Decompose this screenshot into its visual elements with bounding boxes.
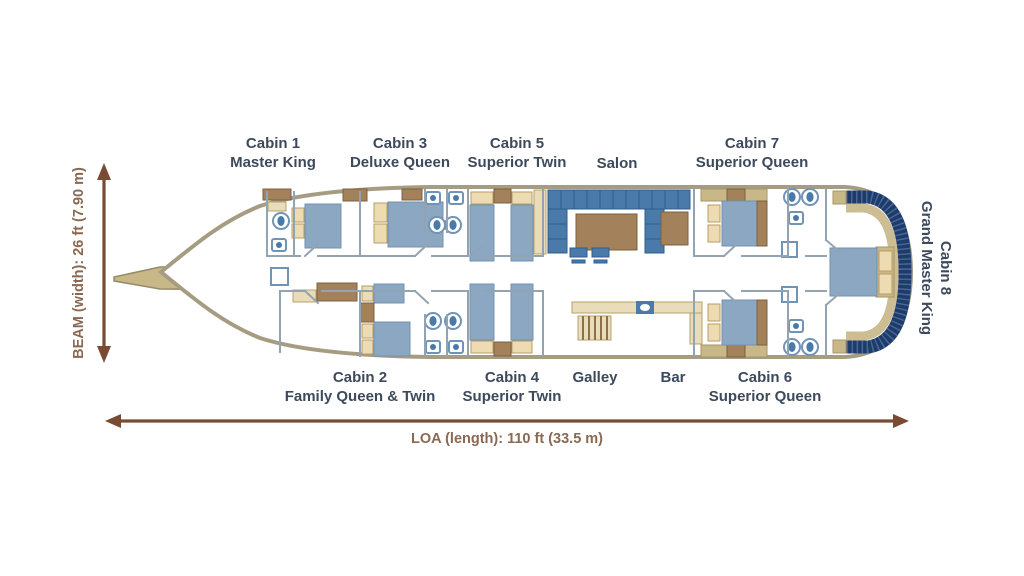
loa-dimension-label: LOA (length): 110 ft (33.5 m): [411, 431, 603, 447]
shower-icon: [782, 242, 797, 257]
shower-icon: [271, 268, 288, 285]
label-line: Superior Queen: [696, 153, 809, 172]
label-cabin-8: Cabin 8 Grand Master King: [917, 201, 955, 335]
label-cabin-6: Cabin 6 Superior Queen: [709, 368, 822, 406]
label-line: Grand Master King: [917, 201, 936, 335]
toilet-icon: [429, 217, 445, 233]
sink-icon: [789, 212, 803, 224]
label-line: Cabin 6: [709, 368, 822, 387]
label-line: Galley: [572, 368, 617, 387]
label-line: Cabin 8: [936, 201, 955, 335]
label-line: Cabin 2: [285, 368, 436, 387]
toilet-icon: [784, 339, 800, 355]
toilet-icon: [784, 189, 800, 205]
label-line: Cabin 4: [463, 368, 562, 387]
label-line: Deluxe Queen: [350, 153, 450, 172]
label-salon: Salon: [597, 154, 638, 173]
label-cabin-7: Cabin 7 Superior Queen: [696, 134, 809, 172]
salon-side-table: [661, 212, 688, 245]
label-bar: Bar: [660, 368, 685, 387]
label-line: Superior Queen: [709, 387, 822, 406]
label-line: Cabin 3: [350, 134, 450, 153]
label-cabin-5: Cabin 5 Superior Twin: [468, 134, 567, 172]
sink-icon: [789, 320, 803, 332]
label-line: Family Queen & Twin: [285, 387, 436, 406]
sink-icon: [426, 341, 440, 353]
label-line: Cabin 7: [696, 134, 809, 153]
cabin-6-furniture: [701, 300, 767, 357]
label-line: Salon: [597, 154, 638, 173]
toilet-icon: [425, 313, 441, 329]
label-cabin-2: Cabin 2 Family Queen & Twin: [285, 368, 436, 406]
toilet-icon: [802, 189, 818, 205]
beam-dimension-label: BEAM (width): 26 ft (7.90 m): [71, 167, 87, 359]
beam-arrow: [97, 163, 111, 363]
toilet-icon: [802, 339, 818, 355]
sink-icon: [449, 341, 463, 353]
label-cabin-3: Cabin 3 Deluxe Queen: [350, 134, 450, 172]
label-line: Superior Twin: [468, 153, 567, 172]
label-line: Bar: [660, 368, 685, 387]
label-cabin-1: Cabin 1 Master King: [230, 134, 316, 172]
sink-icon: [272, 239, 286, 251]
bar-counter: [690, 313, 702, 344]
salon-table: [576, 214, 637, 250]
sink-icon: [426, 192, 440, 204]
grand-master-bed: [830, 248, 877, 296]
label-line: Superior Twin: [463, 387, 562, 406]
label-line: Master King: [230, 153, 316, 172]
deck-plan-drawing: [0, 0, 1024, 576]
label-line: Cabin 5: [468, 134, 567, 153]
label-galley: Galley: [572, 368, 617, 387]
label-line: Cabin 1: [230, 134, 316, 153]
toilet-icon: [273, 213, 289, 229]
shower-icon: [782, 287, 797, 302]
label-cabin-4: Cabin 4 Superior Twin: [463, 368, 562, 406]
loa-arrow: [105, 414, 909, 428]
sink-icon: [449, 192, 463, 204]
cabin-7-furniture: [701, 189, 767, 246]
